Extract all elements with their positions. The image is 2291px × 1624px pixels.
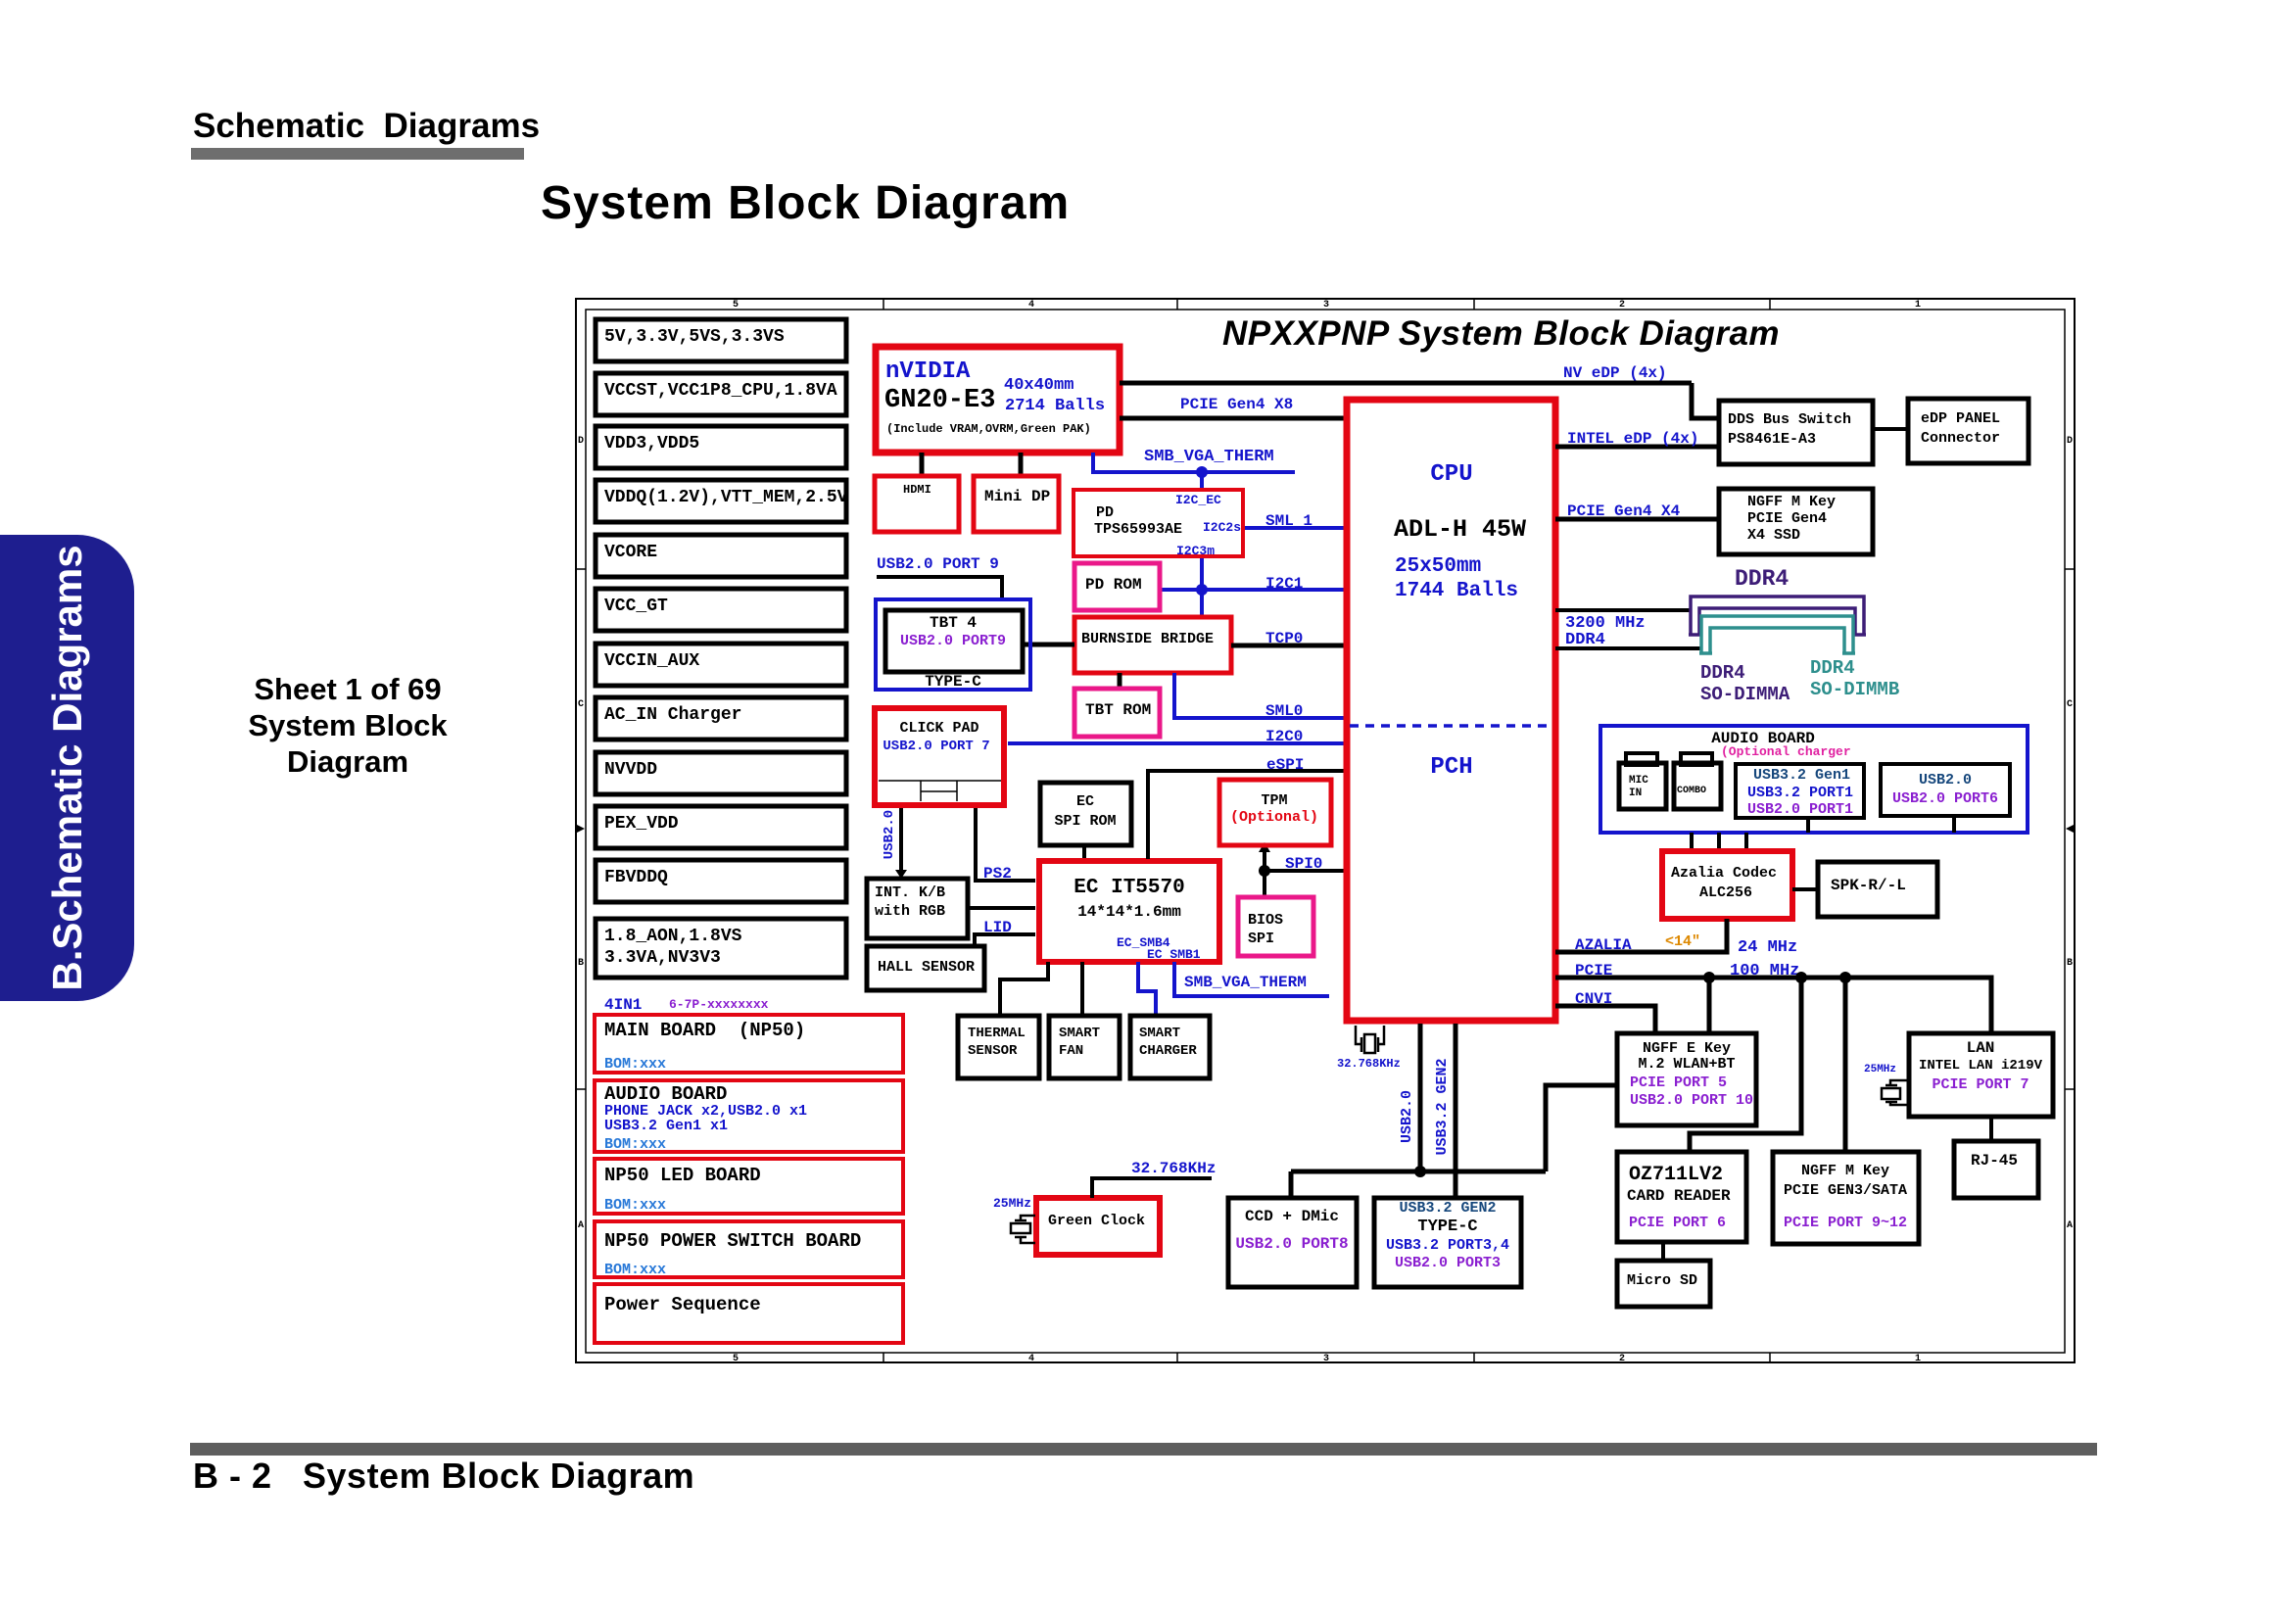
svg-text:5: 5 bbox=[733, 1354, 739, 1364]
svg-text:USB2.0 PORT3: USB2.0 PORT3 bbox=[1395, 1255, 1501, 1271]
svg-text:AC_IN Charger: AC_IN Charger bbox=[604, 705, 741, 725]
svg-text:1: 1 bbox=[1915, 300, 1921, 310]
svg-text:4: 4 bbox=[1028, 1354, 1034, 1364]
svg-text:eDP PANEL: eDP PANEL bbox=[1921, 410, 2000, 427]
svg-text:A: A bbox=[578, 1220, 584, 1231]
svg-text:TYPE-C: TYPE-C bbox=[925, 673, 981, 691]
svg-text:Mini DP: Mini DP bbox=[984, 488, 1050, 505]
svg-text:CCD + DMic: CCD + DMic bbox=[1245, 1208, 1339, 1225]
svg-text:BURNSIDE BRIDGE: BURNSIDE BRIDGE bbox=[1081, 631, 1214, 647]
svg-text:TBT 4: TBT 4 bbox=[930, 614, 977, 632]
svg-text:PCIE Gen4: PCIE Gen4 bbox=[1747, 510, 1827, 527]
svg-text:CARD READER: CARD READER bbox=[1627, 1187, 1731, 1205]
svg-text:SO-DIMMA: SO-DIMMA bbox=[1700, 684, 1790, 705]
svg-text:4: 4 bbox=[1028, 300, 1034, 310]
svg-text:DDR4: DDR4 bbox=[1735, 566, 1789, 592]
svg-text:B - 2 System Block Diagram: B - 2 System Block Diagram bbox=[193, 1456, 694, 1496]
svg-text:SO-DIMMB: SO-DIMMB bbox=[1810, 679, 1899, 700]
svg-text:USB2.0 PORT6: USB2.0 PORT6 bbox=[1892, 790, 1998, 807]
svg-text:SMART: SMART bbox=[1139, 1026, 1180, 1041]
svg-text:I2C3m: I2C3m bbox=[1176, 544, 1215, 558]
svg-text:C: C bbox=[578, 699, 584, 710]
svg-text:GN20-E3: GN20-E3 bbox=[884, 386, 995, 415]
svg-text:5: 5 bbox=[733, 300, 739, 310]
svg-text:TPM: TPM bbox=[1261, 792, 1287, 809]
svg-text:ADL-H 45W: ADL-H 45W bbox=[1394, 515, 1526, 544]
svg-text:USB2.0: USB2.0 bbox=[1919, 772, 1972, 788]
svg-text:RJ-45: RJ-45 bbox=[1971, 1152, 2018, 1170]
svg-text:NGFF M Key: NGFF M Key bbox=[1747, 494, 1836, 510]
svg-text:I2C0: I2C0 bbox=[1265, 728, 1303, 745]
svg-text:TCP0: TCP0 bbox=[1265, 630, 1303, 647]
svg-text:USB3.2 GEN2: USB3.2 GEN2 bbox=[1434, 1058, 1451, 1155]
svg-text:24 MHz: 24 MHz bbox=[1738, 938, 1797, 957]
svg-text:EC SMB1: EC SMB1 bbox=[1147, 947, 1201, 962]
svg-text:NGFF M Key: NGFF M Key bbox=[1801, 1163, 1889, 1179]
svg-text:TPS65993AE: TPS65993AE bbox=[1094, 521, 1182, 538]
svg-text:ALC256: ALC256 bbox=[1699, 884, 1752, 901]
svg-text:COMBO: COMBO bbox=[1677, 786, 1706, 796]
svg-text:HDMI: HDMI bbox=[903, 483, 931, 497]
svg-text:SPK-R/-L: SPK-R/-L bbox=[1831, 877, 1906, 894]
svg-text:SPI ROM: SPI ROM bbox=[1054, 813, 1116, 830]
svg-text:MIC: MIC bbox=[1629, 775, 1648, 787]
svg-text:CLICK PAD: CLICK PAD bbox=[899, 720, 978, 737]
svg-text:SMB_VGA_THERM: SMB_VGA_THERM bbox=[1184, 974, 1307, 991]
svg-text:SML0: SML0 bbox=[1265, 702, 1303, 720]
svg-text:INT. K/B: INT. K/B bbox=[875, 884, 945, 901]
svg-text:USB3.2 Gen1: USB3.2 Gen1 bbox=[1753, 767, 1850, 784]
svg-text:1744 Balls: 1744 Balls bbox=[1395, 580, 1518, 602]
svg-text:4IN1: 4IN1 bbox=[604, 996, 642, 1014]
svg-text:Connector: Connector bbox=[1921, 430, 2000, 447]
svg-text:X4 SSD: X4 SSD bbox=[1747, 527, 1800, 544]
svg-text:IN: IN bbox=[1629, 788, 1642, 799]
svg-text:BIOS: BIOS bbox=[1248, 912, 1283, 929]
svg-text:BOM:xxx: BOM:xxx bbox=[604, 1056, 666, 1073]
svg-text:I2C1: I2C1 bbox=[1265, 575, 1303, 593]
svg-text:USB2.0 PORT9: USB2.0 PORT9 bbox=[900, 633, 1006, 649]
svg-text:PCIE: PCIE bbox=[1575, 962, 1612, 979]
svg-text:PD: PD bbox=[1096, 504, 1114, 521]
svg-text:PCIE PORT 6: PCIE PORT 6 bbox=[1629, 1215, 1726, 1231]
svg-text:VDDQ(1.2V),VTT_MEM,2.5V: VDDQ(1.2V),VTT_MEM,2.5V bbox=[604, 488, 848, 507]
svg-text:NPXXPNP System Block Diagram: NPXXPNP System Block Diagram bbox=[1222, 314, 1780, 353]
svg-text:LID: LID bbox=[983, 919, 1012, 936]
svg-text:I2C_EC: I2C_EC bbox=[1175, 493, 1221, 507]
svg-text:USB2.0 PORT1: USB2.0 PORT1 bbox=[1747, 801, 1853, 818]
svg-text:VCCST,VCC1P8_CPU,1.8VA: VCCST,VCC1P8_CPU,1.8VA bbox=[604, 381, 837, 401]
svg-text:C: C bbox=[2067, 699, 2073, 710]
svg-text:2714 Balls: 2714 Balls bbox=[1005, 397, 1105, 415]
svg-text:25x50mm: 25x50mm bbox=[1395, 555, 1481, 578]
svg-text:VCC_GT: VCC_GT bbox=[604, 597, 668, 616]
svg-text:TBT ROM: TBT ROM bbox=[1085, 701, 1151, 719]
svg-text:PD ROM: PD ROM bbox=[1085, 576, 1142, 594]
svg-text:DDR4: DDR4 bbox=[1810, 657, 1855, 679]
svg-text:5V,3.3V,5VS,3.3VS: 5V,3.3V,5VS,3.3VS bbox=[604, 327, 785, 347]
svg-text:USB2.0 PORT 9: USB2.0 PORT 9 bbox=[877, 555, 999, 573]
svg-text:PCIE PORT 9~12: PCIE PORT 9~12 bbox=[1784, 1215, 1907, 1231]
svg-text:D: D bbox=[2067, 436, 2073, 447]
svg-text:1: 1 bbox=[1915, 1354, 1921, 1364]
svg-text:(Optional charger: (Optional charger bbox=[1721, 744, 1851, 759]
svg-text:Sheet 1 of 69: Sheet 1 of 69 bbox=[254, 672, 441, 706]
svg-text:SMB_VGA_THERM: SMB_VGA_THERM bbox=[1144, 448, 1274, 466]
svg-text:Green Clock: Green Clock bbox=[1048, 1213, 1145, 1229]
svg-text:25MHz: 25MHz bbox=[1864, 1064, 1896, 1075]
svg-text:HALL SENSOR: HALL SENSOR bbox=[878, 959, 975, 976]
svg-text:USB2.0: USB2.0 bbox=[882, 810, 897, 859]
svg-text:SPI: SPI bbox=[1248, 931, 1274, 947]
svg-text:BOM:xxx: BOM:xxx bbox=[604, 1197, 666, 1214]
svg-text:PCIE PORT 5: PCIE PORT 5 bbox=[1630, 1075, 1727, 1091]
svg-text:32.768KHz: 32.768KHz bbox=[1337, 1057, 1401, 1071]
svg-text:40x40mm: 40x40mm bbox=[1004, 376, 1074, 395]
svg-text:PEX_VDD: PEX_VDD bbox=[604, 814, 679, 834]
svg-text:NV eDP (4x): NV eDP (4x) bbox=[1563, 364, 1667, 382]
svg-text:VCCIN_AUX: VCCIN_AUX bbox=[604, 651, 699, 671]
svg-text:6-7P-xxxxxxxx: 6-7P-xxxxxxxx bbox=[669, 997, 769, 1012]
svg-text:PCIE GEN3/SATA: PCIE GEN3/SATA bbox=[1784, 1182, 1907, 1199]
svg-text:INTEL LAN i219V: INTEL LAN i219V bbox=[1919, 1058, 2043, 1074]
svg-text:USB3.2 GEN2: USB3.2 GEN2 bbox=[1399, 1200, 1496, 1217]
svg-text:(Optional): (Optional) bbox=[1230, 809, 1318, 826]
svg-text:D: D bbox=[578, 436, 584, 447]
svg-text:Schematic Diagrams: Schematic Diagrams bbox=[193, 107, 540, 145]
svg-text:OZ711LV2: OZ711LV2 bbox=[1629, 1164, 1723, 1186]
svg-text:USB2.0 PORT8: USB2.0 PORT8 bbox=[1235, 1235, 1348, 1253]
svg-text:System Block Diagram: System Block Diagram bbox=[541, 177, 1070, 229]
svg-text:USB3.2 PORT3,4: USB3.2 PORT3,4 bbox=[1386, 1237, 1509, 1254]
svg-text:USB3.2 Gen1 x1: USB3.2 Gen1 x1 bbox=[604, 1118, 728, 1134]
svg-text:NP50 POWER SWITCH BOARD: NP50 POWER SWITCH BOARD bbox=[604, 1230, 861, 1252]
svg-text:3.3VA,NV3V3: 3.3VA,NV3V3 bbox=[604, 948, 721, 968]
svg-text:PCIE Gen4 X8: PCIE Gen4 X8 bbox=[1180, 396, 1293, 413]
svg-text:System Block: System Block bbox=[248, 708, 448, 742]
svg-text:SMART: SMART bbox=[1059, 1026, 1100, 1041]
svg-text:B: B bbox=[578, 958, 584, 969]
svg-text:BOM:xxx: BOM:xxx bbox=[604, 1136, 666, 1153]
svg-text:3: 3 bbox=[1323, 300, 1329, 310]
svg-text:B.Schematic Diagrams: B.Schematic Diagrams bbox=[44, 545, 90, 990]
svg-text:B: B bbox=[2067, 958, 2073, 969]
svg-text:NVVDD: NVVDD bbox=[604, 760, 657, 780]
svg-text:2: 2 bbox=[1619, 300, 1625, 310]
svg-text:32.768KHz: 32.768KHz bbox=[1131, 1160, 1216, 1177]
svg-text:100 MHz: 100 MHz bbox=[1730, 962, 1799, 980]
svg-text:THERMAL: THERMAL bbox=[968, 1026, 1026, 1041]
svg-text:2: 2 bbox=[1619, 1354, 1625, 1364]
svg-text:SENSOR: SENSOR bbox=[968, 1043, 1018, 1059]
svg-text:14*14*1.6mm: 14*14*1.6mm bbox=[1077, 903, 1181, 921]
svg-text:SML 1: SML 1 bbox=[1265, 512, 1313, 530]
svg-text:CHARGER: CHARGER bbox=[1139, 1043, 1197, 1059]
svg-text:PCIE PORT 7: PCIE PORT 7 bbox=[1932, 1076, 2028, 1093]
svg-text:PS2: PS2 bbox=[983, 865, 1012, 883]
svg-text:EC: EC bbox=[1076, 793, 1094, 810]
svg-text:LAN: LAN bbox=[1967, 1039, 1995, 1057]
svg-text:AUDIO BOARD: AUDIO BOARD bbox=[604, 1083, 727, 1105]
svg-text:FBVDDQ: FBVDDQ bbox=[604, 868, 668, 887]
svg-text:PCIE Gen4 X4: PCIE Gen4 X4 bbox=[1567, 502, 1681, 520]
svg-text:FAN: FAN bbox=[1059, 1043, 1083, 1059]
svg-text:DDS Bus Switch: DDS Bus Switch bbox=[1728, 411, 1851, 428]
svg-text:Power Sequence: Power Sequence bbox=[604, 1294, 761, 1315]
svg-text:3: 3 bbox=[1323, 1354, 1329, 1364]
svg-text:USB3.2 PORT1: USB3.2 PORT1 bbox=[1747, 785, 1853, 801]
svg-text:M.2 WLAN+BT: M.2 WLAN+BT bbox=[1638, 1056, 1735, 1073]
svg-text:USB2.0: USB2.0 bbox=[1399, 1090, 1415, 1143]
svg-text:DDR4: DDR4 bbox=[1565, 631, 1605, 649]
svg-text:BOM:xxx: BOM:xxx bbox=[604, 1262, 666, 1278]
svg-text:Diagram: Diagram bbox=[287, 744, 408, 779]
svg-text:NP50 LED BOARD: NP50 LED BOARD bbox=[604, 1165, 761, 1186]
svg-text:Micro SD: Micro SD bbox=[1627, 1272, 1697, 1289]
svg-text:NGFF E Key: NGFF E Key bbox=[1643, 1040, 1731, 1057]
svg-text:(Include VRAM,OVRM,Green PAK): (Include VRAM,OVRM,Green PAK) bbox=[886, 422, 1091, 436]
svg-text:MAIN BOARD (NP50): MAIN BOARD (NP50) bbox=[604, 1020, 805, 1041]
svg-text:CPU: CPU bbox=[1430, 461, 1472, 488]
svg-text:EC IT5570: EC IT5570 bbox=[1074, 877, 1184, 899]
svg-text:nVIDIA: nVIDIA bbox=[885, 358, 971, 385]
svg-text:I2C2s: I2C2s bbox=[1203, 520, 1241, 535]
svg-text:PS8461E-A3: PS8461E-A3 bbox=[1728, 431, 1816, 448]
svg-text:TYPE-C: TYPE-C bbox=[1417, 1218, 1477, 1236]
svg-text:1.8_AON,1.8VS: 1.8_AON,1.8VS bbox=[604, 927, 742, 946]
svg-text:<14": <14" bbox=[1665, 933, 1700, 950]
svg-text:eSPI: eSPI bbox=[1266, 756, 1304, 774]
svg-text:VCORE: VCORE bbox=[604, 543, 657, 562]
svg-text:DDR4: DDR4 bbox=[1700, 662, 1745, 684]
svg-text:INTEL eDP (4x): INTEL eDP (4x) bbox=[1567, 430, 1698, 448]
svg-text:with RGB: with RGB bbox=[875, 903, 945, 920]
svg-text:A: A bbox=[2067, 1220, 2073, 1231]
svg-text:Azalia Codec: Azalia Codec bbox=[1671, 865, 1777, 882]
svg-text:SPI0: SPI0 bbox=[1285, 855, 1322, 873]
svg-text:AZALIA: AZALIA bbox=[1575, 936, 1632, 954]
svg-text:CNVI: CNVI bbox=[1575, 990, 1612, 1008]
svg-text:PCH: PCH bbox=[1430, 754, 1472, 781]
svg-text:USB2.0 PORT 7: USB2.0 PORT 7 bbox=[883, 739, 989, 754]
svg-text:USB2.0 PORT 10: USB2.0 PORT 10 bbox=[1630, 1092, 1753, 1109]
svg-text:25MHz: 25MHz bbox=[993, 1196, 1031, 1211]
svg-text:VDD3,VDD5: VDD3,VDD5 bbox=[604, 434, 699, 454]
